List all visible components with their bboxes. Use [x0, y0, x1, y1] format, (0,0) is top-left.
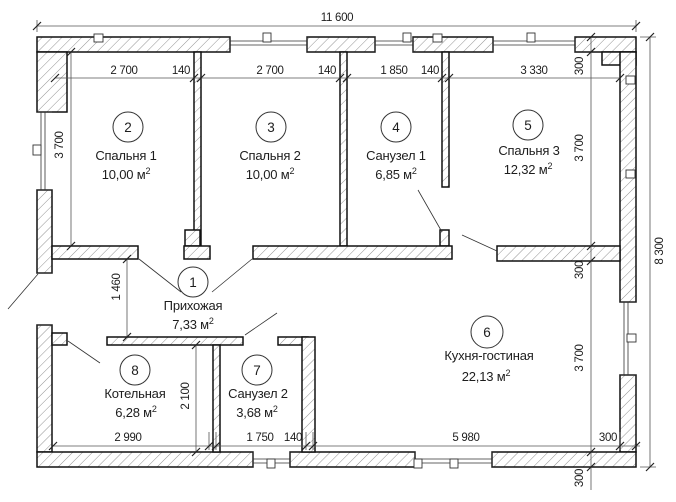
dim-bottom-5: 300 [599, 432, 617, 444]
area-sup: 2 [152, 404, 157, 414]
partition [253, 246, 452, 259]
dim-bottom-4: 5 980 [452, 432, 479, 444]
dim-top-1: 2 700 [110, 65, 137, 77]
area-sup: 2 [145, 166, 150, 176]
area-value: 10,00 м [102, 167, 146, 182]
door-swing-lines [8, 190, 497, 363]
window-mullion [450, 459, 458, 468]
room-area: 7,33 м2 [172, 316, 214, 332]
wall [575, 37, 636, 52]
room-name: Кухня-гостиная [444, 348, 533, 363]
vent-mark [626, 76, 635, 84]
partition [442, 52, 449, 187]
room-name: Санузел 1 [366, 148, 426, 163]
room-area: 22,13 м2 [462, 368, 511, 384]
door-jamb [52, 333, 67, 345]
vent-mark [433, 34, 442, 42]
area-value: 3,68 м [236, 405, 273, 420]
window-mullion [263, 33, 271, 42]
dim-right-2: 3 700 [574, 134, 586, 161]
room-number: 2 [124, 120, 132, 135]
area-value: 6,28 м [115, 405, 152, 420]
floor-plan-page: 11 600 8 300 2 700 140 2 700 140 1 850 1… [0, 0, 676, 502]
window-mullion [267, 459, 275, 468]
room-number: 5 [524, 118, 532, 133]
room-area: 6,85 м2 [375, 166, 417, 182]
room-bedroom-2: 3 Спальня 2 10,00 м2 [239, 112, 300, 182]
room-number: 6 [483, 325, 491, 340]
vent-mark [626, 170, 635, 178]
room-bathroom-2: 7 Санузел 2 3,68 м2 [228, 355, 288, 420]
area-sup: 2 [289, 166, 294, 176]
floor-plan-drawing: 11 600 8 300 2 700 140 2 700 140 1 850 1… [0, 0, 676, 502]
room-area: 10,00 м2 [102, 166, 151, 182]
dim-bottom-1: 2 990 [114, 432, 141, 444]
dim-bedroom-depth: 3 700 [54, 131, 66, 158]
room-name: Санузел 2 [228, 386, 288, 401]
room-number: 3 [267, 120, 275, 135]
dim-right-4: 3 700 [574, 344, 586, 371]
window-mullion [33, 145, 41, 155]
wall [37, 37, 230, 52]
door-jamb [185, 230, 200, 246]
room-number: 8 [131, 363, 139, 378]
dim-top-6: 140 [421, 65, 439, 77]
dim-top-5: 1 850 [380, 65, 407, 77]
wall [413, 37, 493, 52]
dim-overall-height: 8 300 [654, 237, 666, 264]
area-sup: 2 [209, 316, 214, 326]
dim-bottom-3: 140 [284, 432, 302, 444]
window-mullion [414, 459, 422, 468]
room-name: Прихожая [164, 298, 223, 313]
room-area: 10,00 м2 [246, 166, 295, 182]
room-number: 1 [189, 275, 197, 290]
dim-bottom-2: 1 750 [246, 432, 273, 444]
wall [37, 190, 52, 273]
window-mullion [627, 334, 636, 342]
dim-right-1: 300 [574, 57, 586, 75]
dim-top-3: 2 700 [256, 65, 283, 77]
room-name: Котельная [104, 386, 165, 401]
room-area: 6,28 м2 [115, 404, 157, 420]
room-bedroom-3: 5 Спальня 3 12,32 м2 [498, 110, 559, 177]
room-bedroom-1: 2 Спальня 1 10,00 м2 [95, 112, 156, 182]
area-sup: 2 [273, 404, 278, 414]
area-value: 12,32 м [504, 162, 548, 177]
room-name: Спальня 2 [239, 148, 300, 163]
area-sup: 2 [412, 166, 417, 176]
wall [620, 375, 636, 452]
partition [497, 246, 620, 261]
door-jamb [440, 230, 449, 246]
area-value: 10,00 м [246, 167, 290, 182]
room-area: 3,68 м2 [236, 404, 278, 420]
vent-mark [94, 34, 103, 42]
dim-top-7: 3 330 [520, 65, 547, 77]
wall [37, 325, 52, 452]
room-hallway: 1 Прихожая 7,33 м2 [164, 267, 223, 332]
wall-pier [37, 52, 67, 112]
room-number: 7 [253, 363, 261, 378]
area-value: 6,85 м [375, 167, 412, 182]
partition [107, 337, 243, 345]
window-mullion [403, 33, 411, 42]
area-value: 22,13 м [462, 369, 506, 384]
room-boiler: 8 Котельная 6,28 м2 [104, 355, 165, 420]
room-number: 4 [392, 120, 400, 135]
area-value: 7,33 м [172, 317, 209, 332]
dim-right-5: 300 [574, 469, 586, 487]
room-name: Спальня 3 [498, 143, 559, 158]
wall [307, 37, 375, 52]
room-kitchen-living: 6 Кухня-гостиная 22,13 м2 [444, 316, 533, 384]
dim-overall-width: 11 600 [321, 12, 354, 24]
entrance-opening [37, 273, 52, 325]
partition [184, 246, 210, 259]
walls [37, 37, 636, 467]
room-name: Спальня 1 [95, 148, 156, 163]
partition [52, 246, 138, 259]
partition [213, 345, 220, 452]
room-bathroom-1: 4 Санузел 1 6,85 м2 [366, 112, 426, 182]
dim-right-3: 300 [574, 261, 586, 279]
room-area: 12,32 м2 [504, 161, 553, 177]
wall [37, 452, 253, 467]
dim-top-2: 140 [172, 65, 190, 77]
area-sup: 2 [505, 368, 510, 378]
window-mullion [527, 33, 535, 42]
dim-boiler-depth: 2 100 [180, 382, 192, 409]
dim-hallway-depth: 1 460 [111, 273, 123, 300]
dim-top-4: 140 [318, 65, 336, 77]
wall [492, 452, 636, 467]
wall [290, 452, 415, 467]
area-sup: 2 [547, 161, 552, 171]
